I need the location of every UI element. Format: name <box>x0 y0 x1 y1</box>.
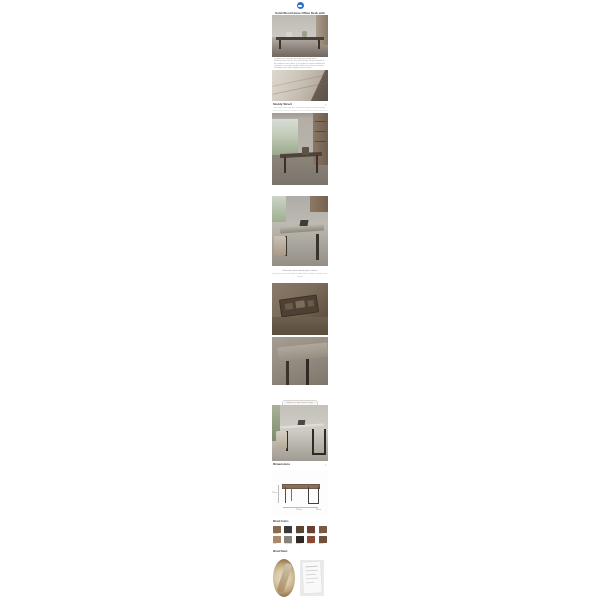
panel-section-title: Wood Panel <box>273 550 287 554</box>
desk-leg-shape <box>316 155 318 173</box>
wood-samples-photo <box>272 557 297 600</box>
swatch-chip[interactable] <box>319 526 327 533</box>
swatch-label: Grey Ash <box>284 543 293 545</box>
certificate-document-shape <box>302 562 322 594</box>
swatch[interactable]: Wenge <box>296 536 304 545</box>
steel-frame-leg-shape <box>312 429 326 455</box>
chevron-right-icon[interactable]: › <box>325 463 326 467</box>
swatch-chip[interactable] <box>273 526 281 533</box>
certificate-text-line <box>306 578 318 579</box>
certificate-text-line <box>305 566 317 567</box>
certificate-photo <box>300 560 324 596</box>
depth-dimension-label: 60cm <box>316 509 321 511</box>
hero-desk-leg-shape <box>279 40 281 49</box>
drawer-compartment-shape <box>307 300 314 307</box>
certificate-text-line <box>306 574 316 575</box>
certificate-text-line <box>306 582 314 583</box>
swatch[interactable]: Walnut <box>273 526 281 535</box>
drawing-leg-shape <box>285 487 286 503</box>
swatch[interactable]: Black Oak <box>284 526 292 535</box>
chair-shape <box>302 147 309 155</box>
swatch[interactable]: Amber <box>319 536 327 545</box>
corner-detail-photo <box>272 337 328 385</box>
height-dimension-line <box>278 485 279 503</box>
drawer-front-shape <box>272 317 328 335</box>
chair-shape <box>274 236 286 256</box>
chevron-right-icon[interactable]: › <box>325 103 326 107</box>
chair-shape <box>276 431 287 449</box>
swatch[interactable]: Oak <box>273 536 281 545</box>
table-leg-shape <box>286 361 289 385</box>
laptop-shape <box>298 420 306 425</box>
intro-paragraph: Crafted from carefully selected solid wo… <box>274 58 326 69</box>
swatch[interactable]: Grey Ash <box>284 536 292 545</box>
hero-desk-top-shape <box>276 37 324 40</box>
sturdy-section-header[interactable]: Sturdy Struct Thickened steel legs with … <box>273 103 327 109</box>
height-dimension-label: 75cm <box>272 492 277 494</box>
dimensions-title: Dimensions <box>273 463 327 467</box>
brand-logo-icon <box>297 2 304 9</box>
drawer-compartment-shape <box>295 300 305 308</box>
desk-scene-photo <box>272 196 328 266</box>
dimensions-section-header[interactable]: Dimensions › <box>273 463 327 468</box>
drawer-compartment-shape <box>285 303 294 310</box>
swatch-label: Rosewood <box>307 533 316 535</box>
shelf-line-shape <box>315 131 326 132</box>
width-dimension-label: 120cm <box>296 509 302 511</box>
shelf-line-shape <box>315 121 326 122</box>
swatch[interactable]: Rosewood <box>307 526 315 535</box>
swatch-chip[interactable] <box>273 536 281 543</box>
drawer-box-shape <box>279 294 319 317</box>
page: Solid Wood Home Office Desk with Steel F… <box>0 0 600 600</box>
swatch-label: Teak <box>319 533 328 535</box>
section-divider <box>272 110 328 111</box>
width-dimension-line <box>283 507 318 508</box>
drawing-leg-shape <box>291 487 292 501</box>
sturdy-section-subtitle: Thickened steel legs with solid wood top… <box>273 107 327 110</box>
swatch-label: Walnut <box>273 533 282 535</box>
swatch[interactable]: Teak <box>319 526 327 535</box>
laptop-shape <box>299 220 308 226</box>
swatches-area: Walnut Black Oak Ebony Rosewood Teak Oak… <box>272 526 328 548</box>
swatch-chip[interactable] <box>284 536 292 543</box>
swatch-chip[interactable] <box>307 526 315 533</box>
window-greenery-shape <box>272 196 286 222</box>
swatch-label: Wenge <box>296 543 305 545</box>
swatch[interactable]: Cherry <box>307 536 315 545</box>
wall-shelf-shape <box>310 196 328 212</box>
swatch-chip[interactable] <box>296 526 304 533</box>
brand-logo-glyph-icon <box>298 5 302 7</box>
swatch-grid: Walnut Black Oak Ebony Rosewood Teak Oak… <box>273 526 327 546</box>
room-photo <box>272 113 328 185</box>
drawing-frame-leg-shape <box>308 487 319 504</box>
bright-desk-photo <box>272 405 328 461</box>
hero-desk-leg-shape <box>318 40 320 49</box>
swatch[interactable]: Ebony <box>296 526 304 535</box>
dimension-drawing: 75cm 120cm 60cm <box>272 470 328 517</box>
window-shape <box>272 119 298 155</box>
swatch-label: Black Oak <box>284 533 293 535</box>
swatch-label: Amber <box>319 543 328 545</box>
desk-leg-shape <box>284 157 286 173</box>
desk-leg-shape <box>316 234 319 260</box>
swatch-label: Cherry <box>307 543 316 545</box>
product-detail-column: Solid Wood Home Office Desk with Steel F… <box>272 0 328 600</box>
wood-texture-photo <box>272 70 328 101</box>
swatch-label: Ebony <box>296 533 305 535</box>
shelf-line-shape <box>315 141 326 142</box>
swatches-title: Wood Colors <box>273 520 289 524</box>
certificate-text-line <box>306 570 318 571</box>
hero-decor-shape <box>286 32 292 37</box>
tabletop-corner-shape <box>277 342 328 361</box>
feature-caption: Selected natural wood grain surface Ever… <box>272 270 328 278</box>
table-leg-shape <box>306 359 309 385</box>
swatch-chip[interactable] <box>284 526 292 533</box>
swatch-chip[interactable] <box>307 536 315 543</box>
swatch-chip[interactable] <box>319 536 327 543</box>
hero-photo <box>272 15 328 57</box>
drawer-photo <box>272 283 328 335</box>
hero-plant-shape <box>302 31 307 37</box>
swatch-chip[interactable] <box>296 536 304 543</box>
swatch-label: Oak <box>273 543 282 545</box>
feature-caption-line2: Every corner is smoothly rounded and pol… <box>272 273 328 278</box>
